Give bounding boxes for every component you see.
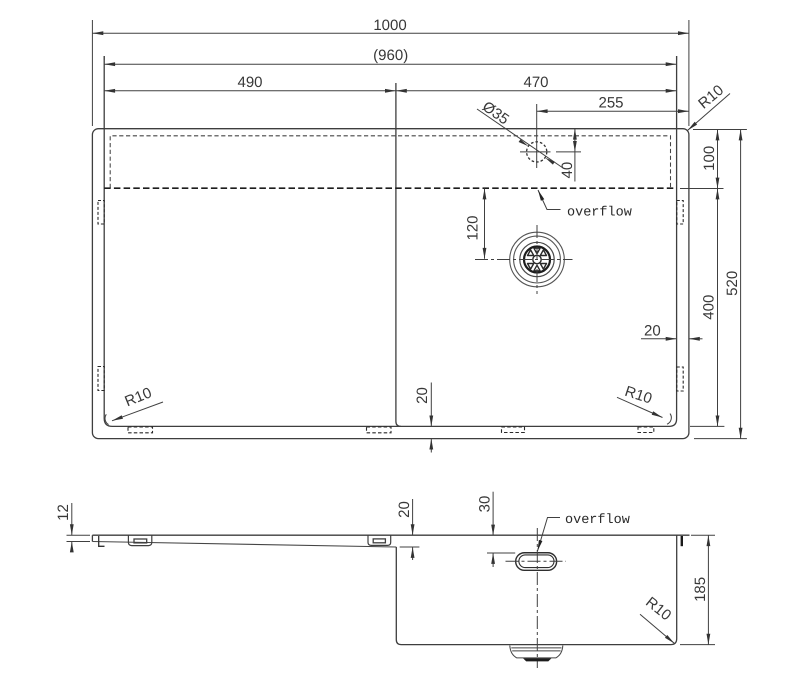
svg-text:20: 20 bbox=[644, 322, 661, 339]
svg-text:1000: 1000 bbox=[373, 17, 406, 34]
svg-text:overflow: overflow bbox=[567, 206, 632, 221]
svg-text:20: 20 bbox=[414, 387, 431, 404]
svg-text:overflow: overflow bbox=[565, 513, 630, 528]
svg-text:400: 400 bbox=[701, 295, 718, 320]
svg-text:12: 12 bbox=[55, 504, 72, 521]
svg-text:20: 20 bbox=[396, 501, 413, 518]
svg-text:40: 40 bbox=[559, 162, 576, 179]
svg-text:(960): (960) bbox=[373, 47, 408, 64]
svg-text:100: 100 bbox=[701, 146, 718, 171]
svg-text:30: 30 bbox=[477, 496, 494, 513]
svg-text:185: 185 bbox=[692, 577, 709, 602]
svg-text:120: 120 bbox=[464, 215, 481, 240]
svg-text:520: 520 bbox=[724, 271, 741, 296]
svg-text:490: 490 bbox=[237, 74, 262, 91]
svg-text:470: 470 bbox=[523, 74, 548, 91]
svg-text:255: 255 bbox=[598, 95, 623, 112]
